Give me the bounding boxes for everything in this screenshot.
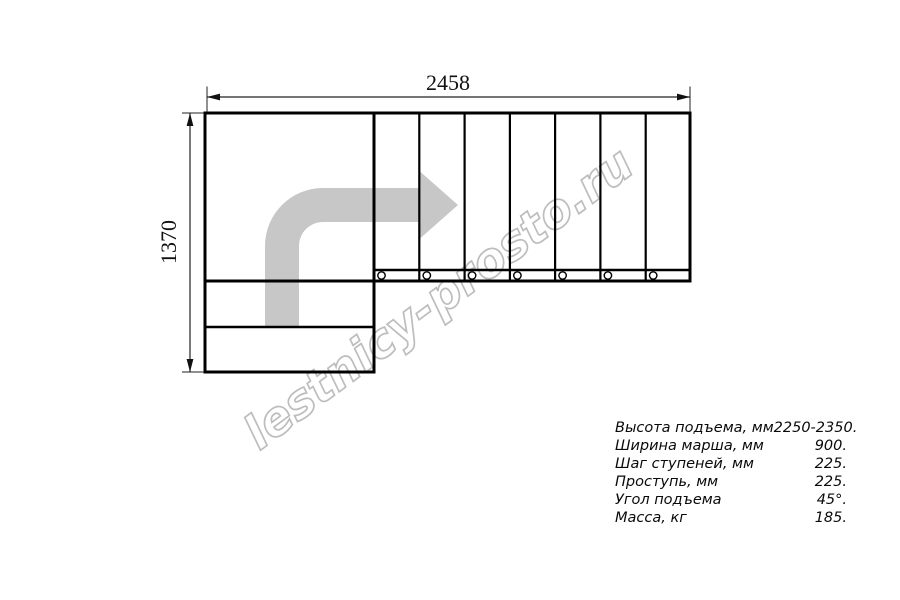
spec-value: 2250-2350. <box>774 419 858 437</box>
width-dim-arrow-left <box>207 94 220 101</box>
width-dim-label: 2458 <box>426 70 470 95</box>
baluster-circle <box>604 272 611 279</box>
spec-row-mass: Масса, кг 185. <box>615 509 847 527</box>
baluster-circle <box>468 272 475 279</box>
height-dim-arrow-top <box>187 113 194 126</box>
stair-drawing-canvas: lestnicy-prosto.ru <box>0 0 900 600</box>
spec-label: Масса, кг <box>615 509 687 527</box>
baluster-circle <box>378 272 385 279</box>
spec-label: Угол подъема <box>615 491 722 509</box>
baluster-circle <box>559 272 566 279</box>
baluster-circle <box>650 272 657 279</box>
spec-label: Проступь, мм <box>615 473 718 491</box>
spec-value: 900. <box>815 437 847 455</box>
specs-table: Высота подъема, мм 2250-2350. Ширина мар… <box>615 419 847 527</box>
spec-label: Шаг ступеней, мм <box>615 455 754 473</box>
spec-label: Высота подъема, мм <box>615 419 774 437</box>
spec-value: 225. <box>815 455 847 473</box>
width-dimension: 2458 <box>207 70 690 112</box>
spec-label: Ширина марша, мм <box>615 437 764 455</box>
spec-row-march-width: Ширина марша, мм 900. <box>615 437 847 455</box>
baluster-circle <box>514 272 521 279</box>
spec-value: 45°. <box>817 491 847 509</box>
spec-row-angle: Угол подъема 45°. <box>615 491 847 509</box>
spec-value: 185. <box>815 509 847 527</box>
height-dimension: 1370 <box>156 113 204 372</box>
spec-row-tread: Проступь, мм 225. <box>615 473 847 491</box>
width-dim-arrow-right <box>677 94 690 101</box>
baluster-circle <box>423 272 430 279</box>
height-dim-label: 1370 <box>156 220 181 264</box>
spec-value: 225. <box>815 473 847 491</box>
spec-row-step-pitch: Шаг ступеней, мм 225. <box>615 455 847 473</box>
spec-row-height: Высота подъема, мм 2250-2350. <box>615 419 847 437</box>
height-dim-arrow-bottom <box>187 359 194 372</box>
